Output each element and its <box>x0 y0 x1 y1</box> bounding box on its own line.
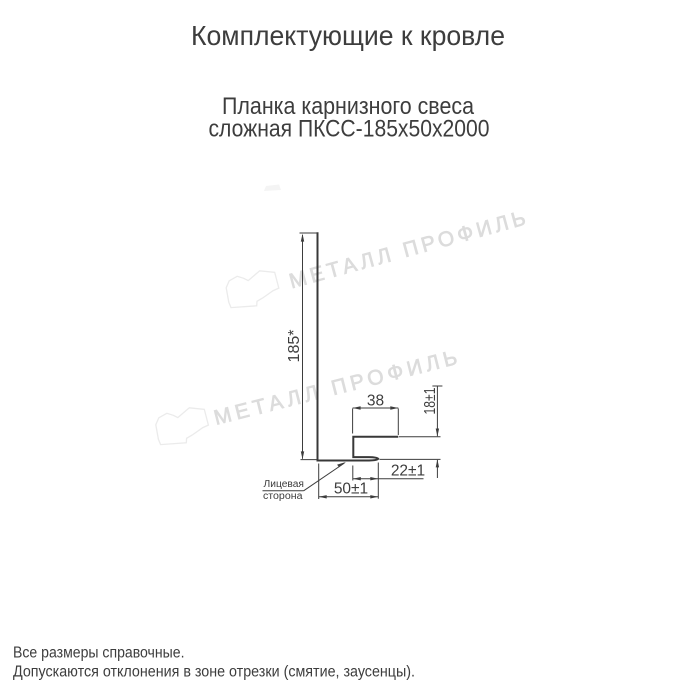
svg-text:Комплектующие к кровле: Комплектующие к кровле <box>191 20 505 51</box>
svg-text:сторона: сторона <box>263 491 303 502</box>
svg-text:Допускаются отклонения в зоне: Допускаются отклонения в зоне отрезки (с… <box>13 664 415 681</box>
svg-text:18±1: 18±1 <box>422 388 439 415</box>
svg-text:сложная ПКСС-185х50х2000: сложная ПКСС-185х50х2000 <box>209 116 490 143</box>
svg-text:Лицевая: Лицевая <box>264 479 305 490</box>
svg-text:185*: 185* <box>286 330 303 363</box>
svg-text:22±1: 22±1 <box>391 463 425 480</box>
svg-text:Все размеры справочные.: Все размеры справочные. <box>13 645 185 662</box>
svg-text:38: 38 <box>367 393 384 410</box>
svg-text:50±1: 50±1 <box>334 481 368 498</box>
